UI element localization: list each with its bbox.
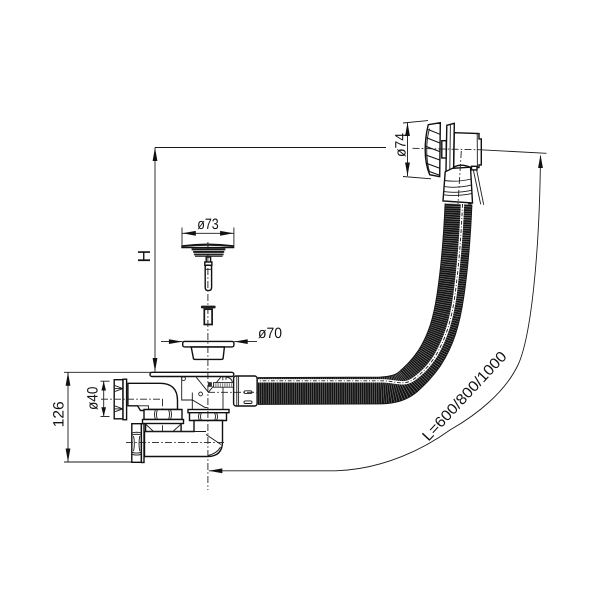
svg-text:ø70: ø70: [258, 325, 282, 342]
svg-text:ø40: ø40: [84, 387, 101, 411]
svg-text:ø73: ø73: [197, 216, 219, 233]
svg-text:H: H: [134, 250, 154, 263]
svg-text:ø74: ø74: [392, 133, 409, 157]
svg-text:126: 126: [51, 401, 68, 427]
